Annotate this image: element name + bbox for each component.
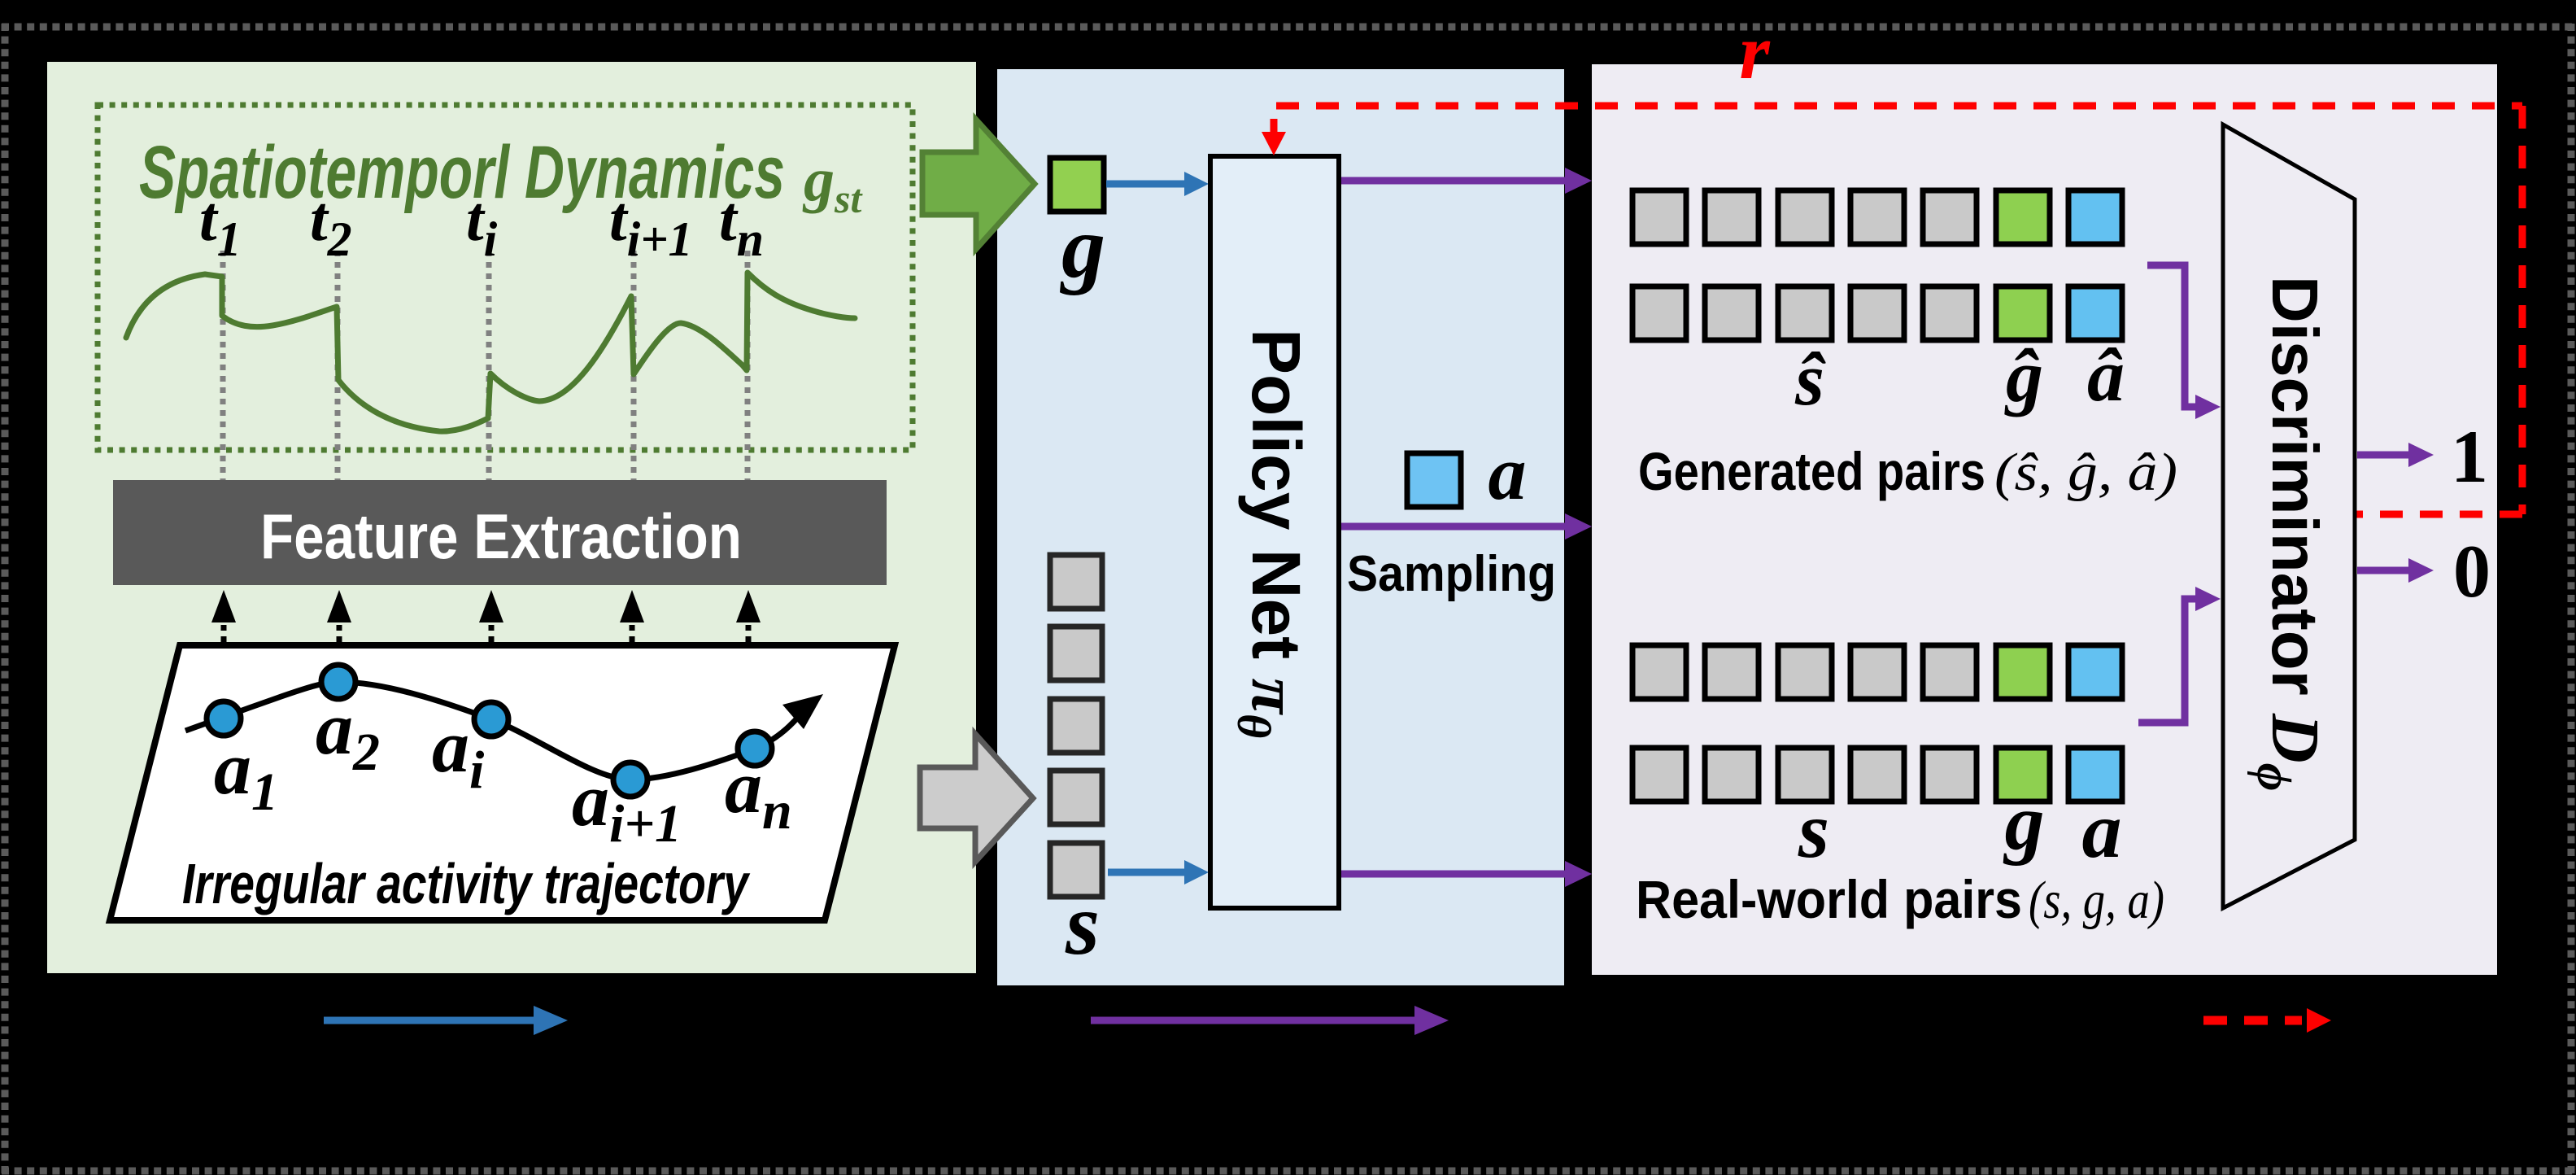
svg-text:Irregular activity trajectory: Irregular activity trajectory	[182, 852, 750, 915]
svg-text:s: s	[1065, 876, 1100, 973]
svg-text:s: s	[1798, 787, 1829, 875]
svg-text:1: 1	[2451, 415, 2488, 498]
svg-text:Spatiotemporl Dynamics: Spatiotemporl Dynamics	[139, 131, 785, 214]
svg-text:Feature Extraction: Feature Extraction	[260, 500, 742, 572]
svg-text:0: 0	[2453, 530, 2491, 613]
svg-text:â: â	[2087, 334, 2125, 417]
svg-text:a: a	[2082, 787, 2122, 875]
svg-text:r: r	[1739, 8, 1771, 95]
svg-text:Discriminator Dϕ: Discriminator Dϕ	[2247, 276, 2333, 791]
svg-text:g: g	[2003, 779, 2045, 867]
svg-text:Policy Net πθ: Policy Net πθ	[1227, 329, 1314, 738]
svg-text:Real-world pairs: Real-world pairs	[1636, 869, 2022, 929]
svg-text:Sampling: Sampling	[1347, 546, 1556, 602]
svg-text:(s, g, a): (s, g, a)	[2029, 871, 2164, 930]
svg-text:a: a	[1489, 431, 1527, 516]
svg-text:(ŝ, ĝ, â): (ŝ, ĝ, â)	[1994, 443, 2177, 502]
svg-text:Generated pairs: Generated pairs	[1638, 441, 1985, 501]
svg-text:ŝ: ŝ	[1794, 338, 1826, 421]
svg-text:ĝ: ĝ	[2004, 334, 2043, 417]
svg-text:g: g	[1060, 199, 1105, 296]
